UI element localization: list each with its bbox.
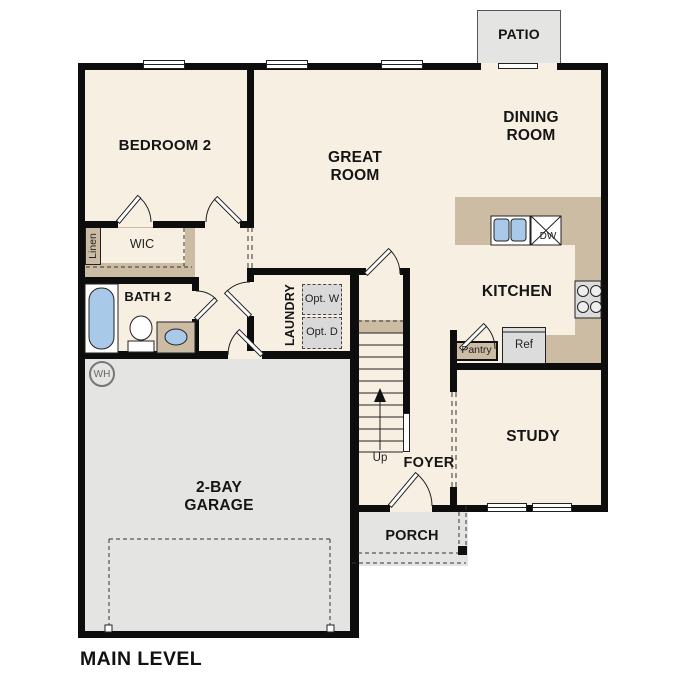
wall bbox=[403, 268, 410, 413]
window bbox=[266, 60, 308, 69]
pantry-label: Pantry bbox=[455, 344, 498, 356]
wall bbox=[601, 63, 608, 512]
stair-railing bbox=[403, 413, 410, 452]
refrigerator-label: Ref bbox=[502, 339, 546, 352]
wall bbox=[254, 268, 352, 275]
wall bbox=[247, 316, 254, 353]
kitchen-label: KITCHEN bbox=[467, 283, 567, 301]
wall bbox=[352, 268, 366, 275]
wall bbox=[78, 277, 195, 284]
wall bbox=[450, 363, 608, 370]
kitchen-counter-bottom bbox=[546, 335, 601, 365]
porch-label: PORCH bbox=[372, 528, 452, 545]
optional-washer-box: Opt. W bbox=[302, 284, 342, 315]
optional-dryer-label: Opt. D bbox=[306, 326, 338, 339]
wall bbox=[247, 268, 254, 282]
linen-label: Linen bbox=[87, 224, 99, 268]
patio-label: PATIO bbox=[477, 26, 561, 43]
optional-washer-label: Opt. W bbox=[305, 293, 339, 306]
wall bbox=[192, 277, 199, 291]
wall bbox=[350, 268, 359, 638]
bedroom-2-label: BEDROOM 2 bbox=[100, 137, 230, 155]
dishwasher-label: DW bbox=[536, 231, 560, 243]
plan-title: MAIN LEVEL bbox=[80, 648, 202, 671]
garage-label: 2-BAY GARAGE bbox=[169, 479, 269, 516]
kitchen-counter-top bbox=[455, 197, 601, 245]
water-heater: WH bbox=[89, 361, 115, 387]
wic-label: WIC bbox=[112, 237, 172, 251]
laundry-label: LAUNDRY bbox=[283, 283, 297, 347]
great-room-label: GREAT ROOM bbox=[310, 149, 400, 186]
study-label: STUDY bbox=[483, 428, 583, 446]
wall bbox=[247, 63, 254, 227]
optional-dryer-box: Opt. D bbox=[302, 317, 342, 349]
floor-plan: Opt. W Opt. D WH bbox=[0, 0, 687, 687]
wall bbox=[450, 487, 457, 506]
window bbox=[143, 60, 185, 69]
window bbox=[487, 503, 527, 512]
water-heater-label: WH bbox=[94, 369, 111, 380]
wall bbox=[78, 631, 359, 638]
wall bbox=[192, 319, 199, 353]
stairs-up-label: Up bbox=[364, 452, 396, 465]
wall bbox=[450, 370, 457, 392]
window bbox=[381, 60, 423, 69]
garage-entry-opening bbox=[228, 351, 262, 359]
wall bbox=[153, 221, 205, 228]
bath-2-label: BATH 2 bbox=[118, 289, 178, 304]
window bbox=[532, 503, 572, 512]
sliding-door bbox=[498, 63, 538, 69]
wall bbox=[78, 351, 359, 359]
front-door-opening bbox=[390, 505, 432, 512]
coat-closet-shelf bbox=[358, 320, 403, 333]
foyer-label: FOYER bbox=[393, 455, 465, 472]
dining-room-label: DINING ROOM bbox=[481, 109, 581, 146]
